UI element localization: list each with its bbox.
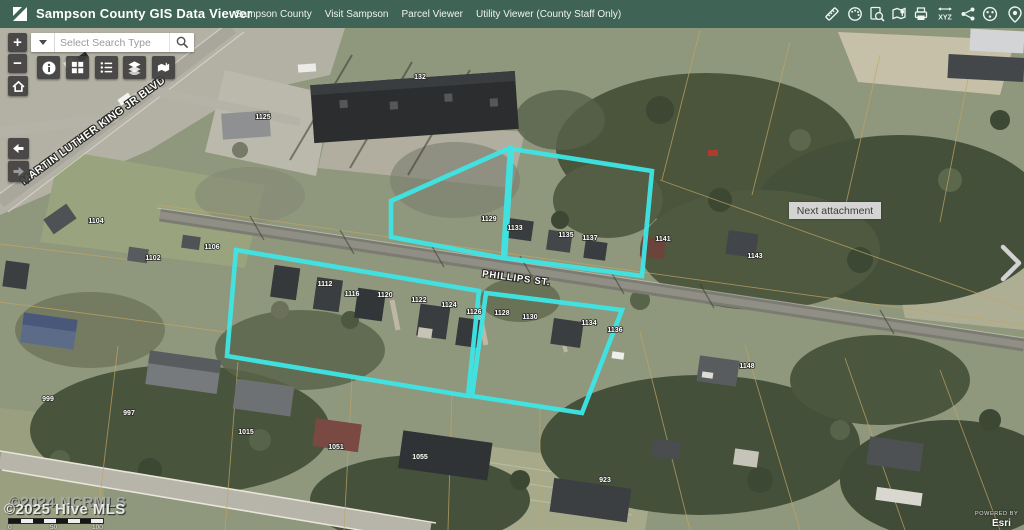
app-header: Sampson County GIS Data Viewer Sampson C… bbox=[0, 0, 1024, 28]
parcel-number-label: 1129 bbox=[481, 216, 496, 223]
draw-icon[interactable] bbox=[846, 5, 864, 23]
search-input[interactable] bbox=[55, 33, 169, 52]
parcel-number-label: 1124 bbox=[441, 302, 456, 309]
parcel-number-label: 1134 bbox=[581, 320, 596, 327]
basemap-icon bbox=[156, 60, 171, 75]
parcel-number-label: 923 bbox=[599, 477, 611, 484]
scale-bar-labels: 0 50 100 bbox=[8, 524, 104, 530]
parcel-number-label: 1122 bbox=[411, 297, 426, 304]
next-extent-button[interactable] bbox=[8, 161, 29, 182]
zoom-in-button[interactable]: + bbox=[8, 33, 27, 52]
parcel-number-label: 997 bbox=[123, 410, 135, 417]
next-attachment-chevron[interactable] bbox=[998, 240, 1024, 286]
coordinates-xyz-icon[interactable]: XYZ bbox=[936, 5, 954, 23]
esri-attribution: Esri bbox=[992, 518, 1011, 529]
locate-pin-icon[interactable] bbox=[1006, 5, 1024, 23]
header-nav: Sampson County Visit Sampson Parcel View… bbox=[235, 0, 621, 28]
next-attachment-tooltip: Next attachment bbox=[789, 202, 881, 219]
list-icon bbox=[99, 60, 114, 75]
info-icon bbox=[41, 60, 57, 76]
search-bar bbox=[31, 33, 194, 52]
arrow-left-icon bbox=[11, 141, 26, 156]
scale-label: 50 bbox=[50, 524, 57, 530]
parcel-number-label: 1125 bbox=[255, 114, 270, 121]
chevron-down-icon bbox=[39, 40, 47, 45]
app-logo-icon bbox=[10, 4, 30, 24]
grid-icon bbox=[70, 60, 85, 75]
parcel-number-label: 1143 bbox=[747, 253, 762, 260]
bookmark-map-icon[interactable] bbox=[890, 5, 908, 23]
previous-extent-button[interactable] bbox=[8, 138, 29, 159]
map-canvas[interactable]: MARTIN LUTHER KING JR BLVD PHILLIPS ST. … bbox=[0, 28, 1024, 530]
gis-viewer-window: MARTIN LUTHER KING JR BLVD PHILLIPS ST. … bbox=[0, 0, 1024, 530]
parcel-number-label: 1137 bbox=[582, 235, 597, 242]
powered-by-label: POWERED BY bbox=[975, 511, 1018, 517]
parcel-number-label: 1055 bbox=[412, 454, 428, 461]
parcel-number-label: 1120 bbox=[377, 292, 392, 299]
scale-bar: 0 50 100 bbox=[8, 518, 104, 530]
share-icon[interactable] bbox=[959, 5, 977, 23]
print-icon[interactable] bbox=[912, 5, 930, 23]
measure-icon[interactable] bbox=[823, 5, 841, 23]
nav-utility-viewer[interactable]: Utility Viewer (County Staff Only) bbox=[476, 9, 621, 20]
parcel-number-label: 1130 bbox=[522, 314, 537, 321]
scale-label: 100 bbox=[92, 524, 103, 530]
home-icon bbox=[11, 79, 26, 94]
scale-label: 0 bbox=[8, 524, 12, 530]
layers-button[interactable] bbox=[123, 56, 146, 79]
search-button[interactable] bbox=[169, 33, 194, 52]
parcel-number-label: 1104 bbox=[88, 218, 103, 225]
parcel-number-label: 1141 bbox=[655, 236, 670, 243]
parcel-number-label: 999 bbox=[42, 396, 54, 403]
basemap-globe-icon[interactable] bbox=[981, 5, 999, 23]
parcel-number-label: 1128 bbox=[494, 310, 509, 317]
home-button[interactable] bbox=[8, 76, 28, 96]
parcel-number-label: 1135 bbox=[558, 232, 573, 239]
parcel-number-label: 1148 bbox=[739, 363, 754, 370]
parcel-number-label: 1015 bbox=[238, 429, 254, 436]
nav-visit-sampson[interactable]: Visit Sampson bbox=[325, 9, 389, 20]
zoom-out-button[interactable]: − bbox=[8, 54, 27, 73]
parcel-number-label: 1106 bbox=[204, 244, 219, 251]
arrow-right-icon bbox=[11, 164, 26, 179]
mls-watermark-front: ©2025 Hive MLS bbox=[4, 501, 126, 518]
parcel-number-label: 132 bbox=[414, 74, 426, 81]
nav-sampson-county[interactable]: Sampson County bbox=[235, 9, 312, 20]
identify-icon[interactable] bbox=[868, 5, 886, 23]
layers-icon bbox=[127, 60, 142, 75]
basemap-gallery-button[interactable] bbox=[152, 56, 175, 79]
nav-parcel-viewer[interactable]: Parcel Viewer bbox=[401, 9, 463, 20]
parcel-number-label: 1126 bbox=[466, 309, 481, 316]
parcel-number-label: 1116 bbox=[345, 291, 360, 298]
legend-button[interactable] bbox=[66, 56, 89, 79]
parcel-number-label: 1051 bbox=[328, 444, 344, 451]
search-type-dropdown[interactable] bbox=[31, 33, 55, 52]
parcel-number-label: 1136 bbox=[607, 327, 622, 334]
info-button[interactable] bbox=[37, 56, 60, 79]
parcel-number-label: 1112 bbox=[318, 281, 333, 288]
parcel-number-label: 1133 bbox=[507, 225, 522, 232]
search-icon bbox=[176, 36, 189, 49]
page-title: Sampson County GIS Data Viewer bbox=[36, 6, 252, 21]
parcel-number-label: 1102 bbox=[145, 255, 160, 262]
layer-list-button[interactable] bbox=[95, 56, 118, 79]
svg-text:XYZ: XYZ bbox=[938, 15, 952, 22]
